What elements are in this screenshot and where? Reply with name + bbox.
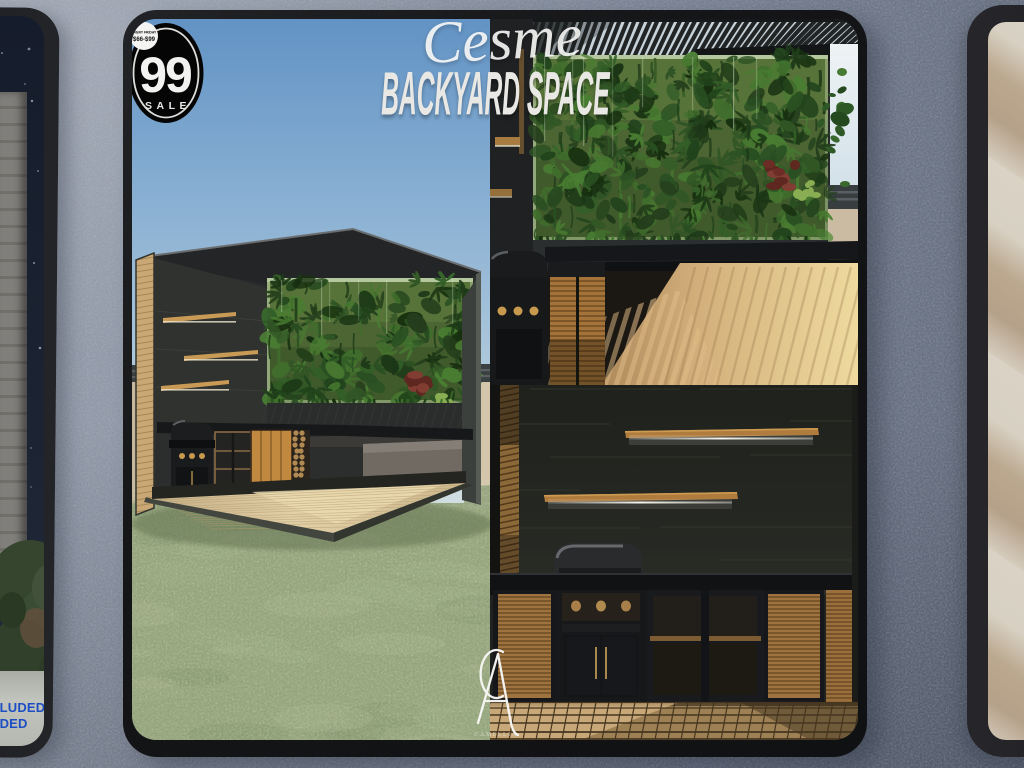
- svg-text:CAMELLIA: CAMELLIA: [475, 732, 518, 738]
- svg-text:SALE: SALE: [145, 100, 191, 112]
- svg-text:$66-$99: $66-$99: [133, 37, 156, 43]
- svg-text:99: 99: [139, 47, 191, 103]
- svg-text:EVERY FRIDAY: EVERY FRIDAY: [132, 31, 157, 35]
